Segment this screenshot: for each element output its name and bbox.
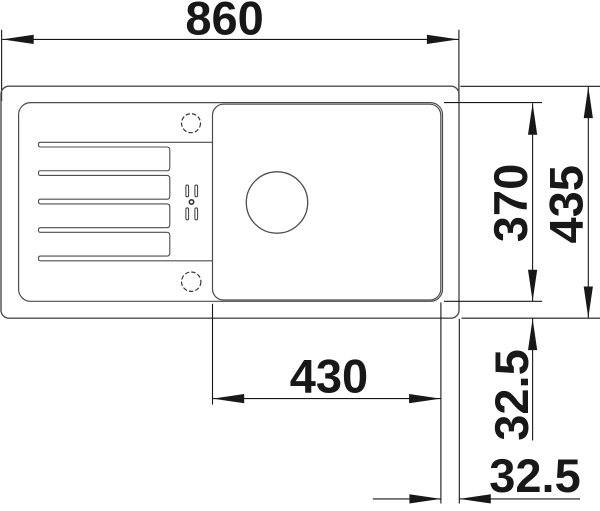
svg-text:370: 370 [484, 164, 537, 242]
svg-text:32.5: 32.5 [485, 349, 538, 440]
svg-text:32.5: 32.5 [489, 449, 580, 502]
svg-text:860: 860 [185, 0, 263, 44]
svg-text:430: 430 [290, 350, 368, 403]
svg-text:435: 435 [539, 165, 592, 243]
